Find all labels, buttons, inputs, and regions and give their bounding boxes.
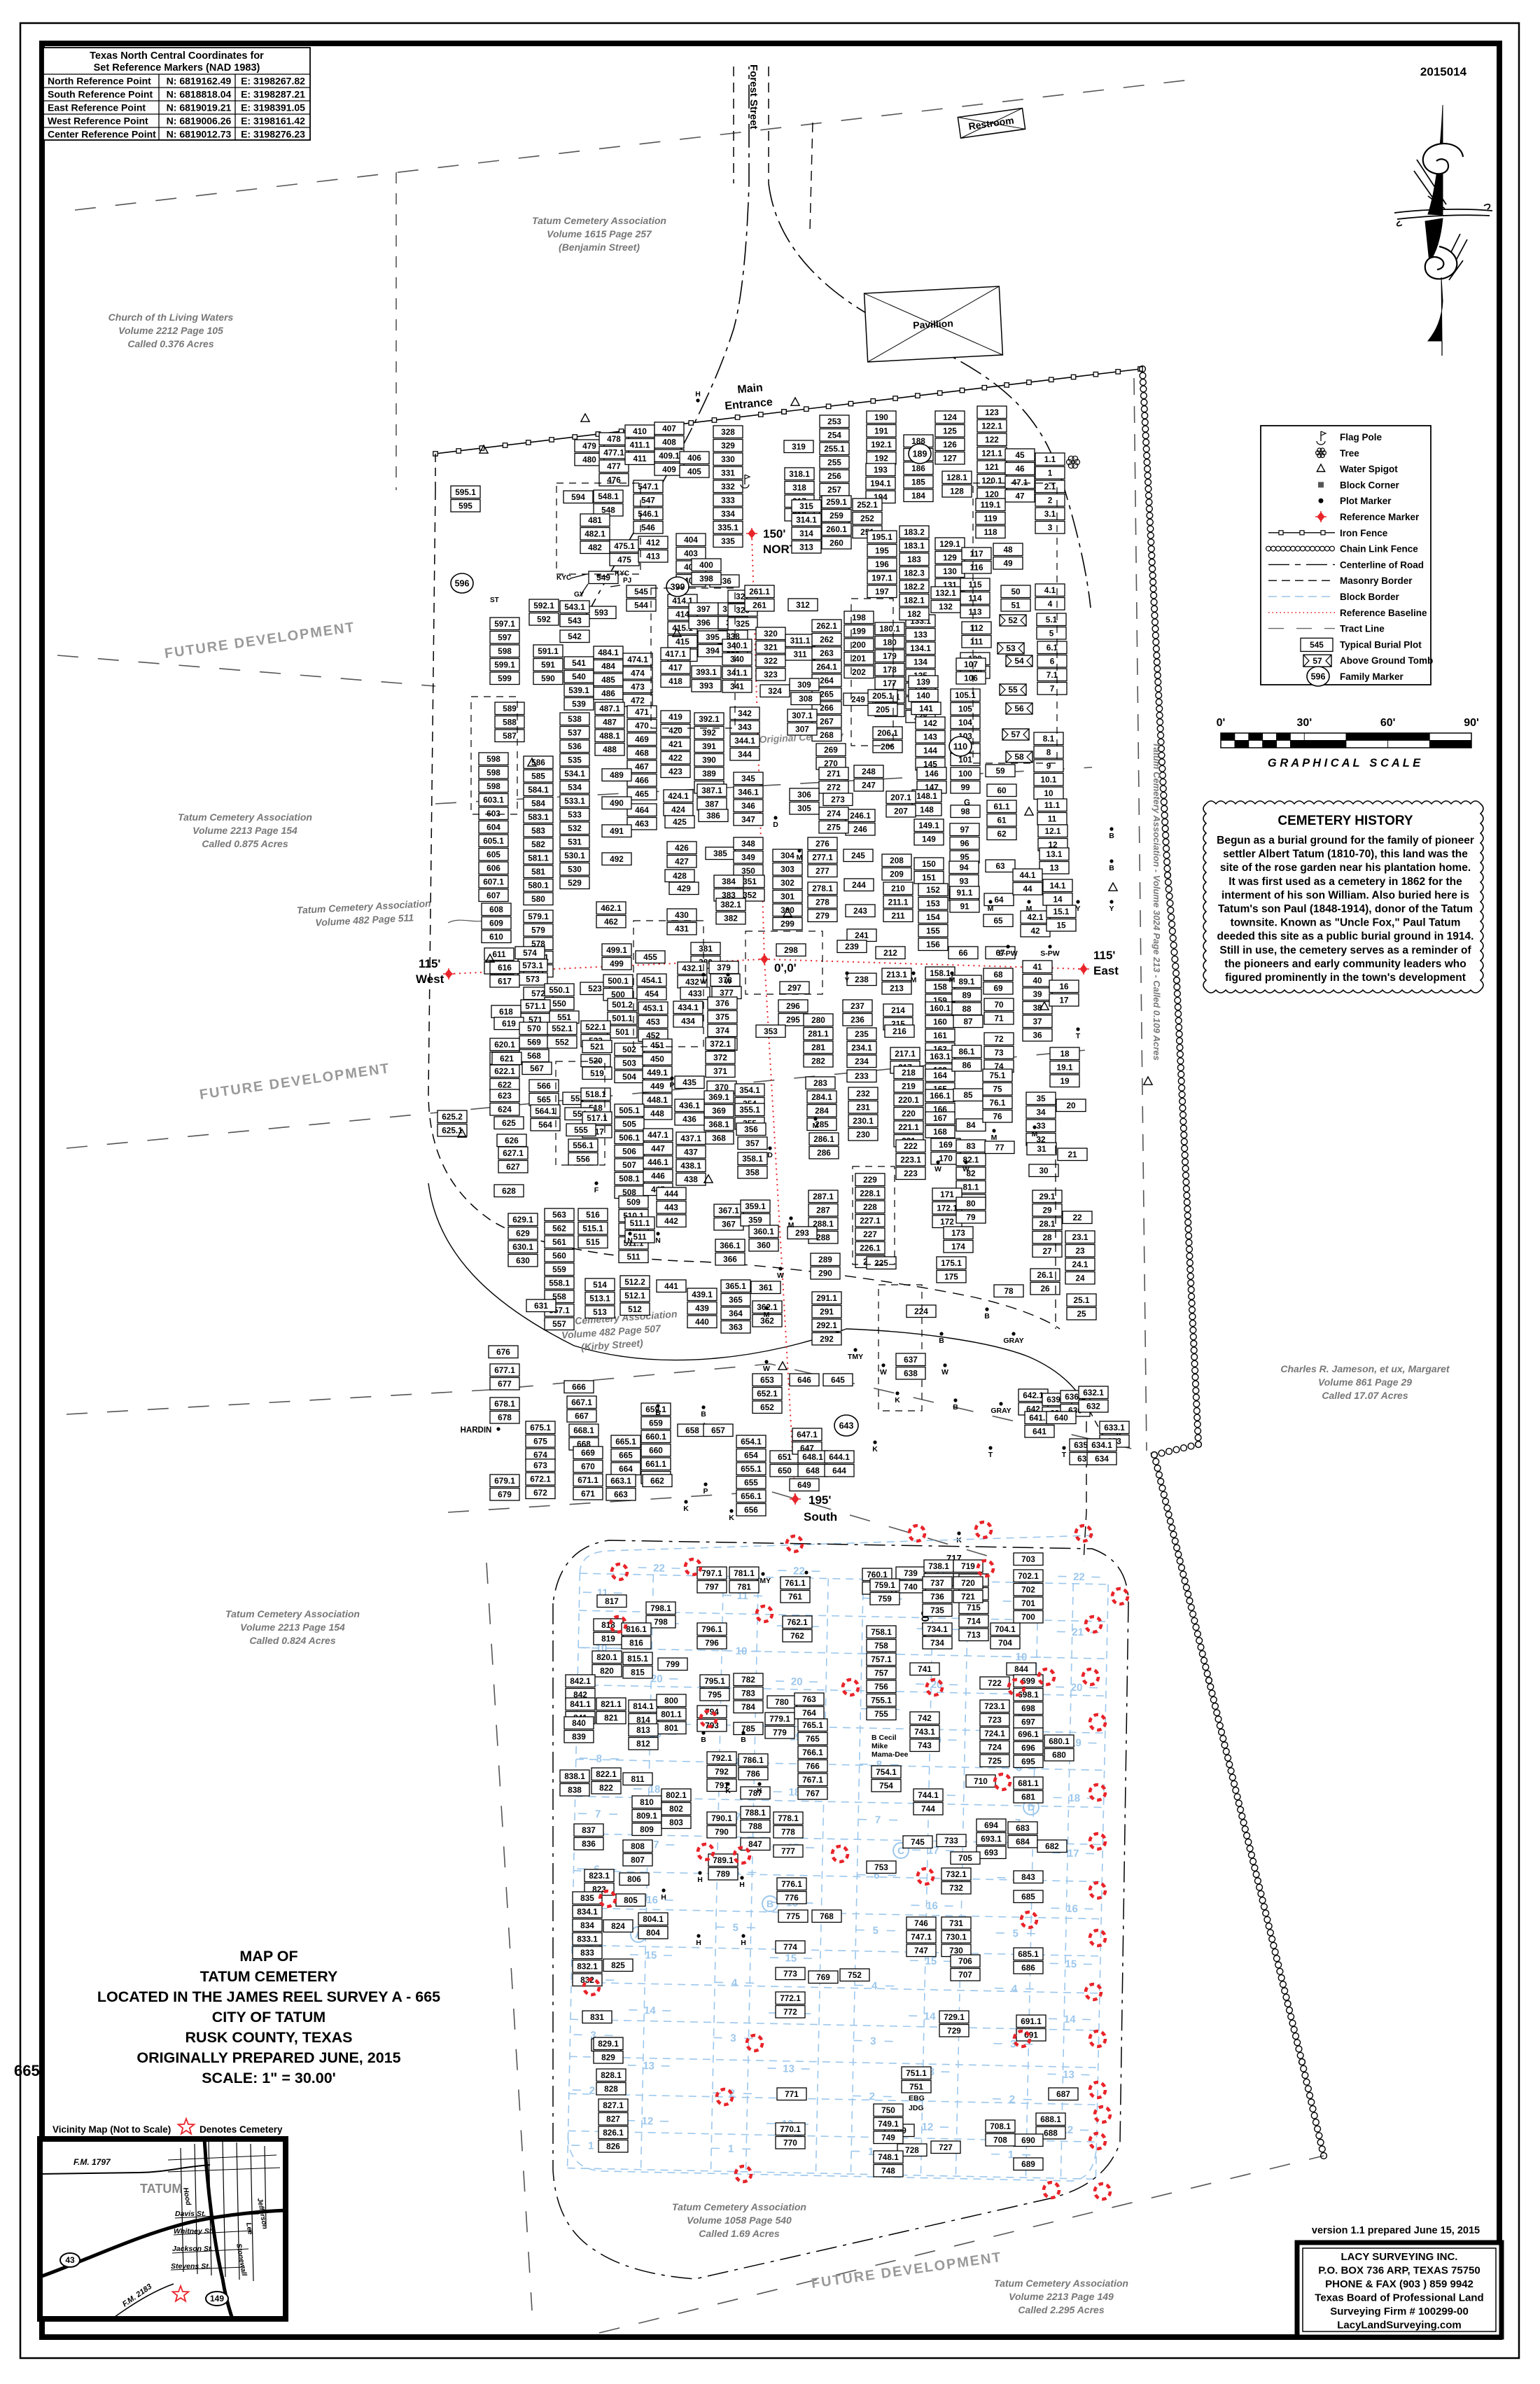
svg-text:665: 665 <box>14 2062 40 2079</box>
svg-text:842.1: 842.1 <box>570 1676 591 1686</box>
svg-text:678: 678 <box>498 1413 512 1423</box>
svg-text:192.1: 192.1 <box>871 440 892 449</box>
svg-text:227.1: 227.1 <box>860 1216 881 1226</box>
svg-text:782: 782 <box>741 1675 755 1685</box>
svg-text:840: 840 <box>572 1718 586 1728</box>
svg-text:608: 608 <box>489 905 503 914</box>
svg-text:765: 765 <box>806 1734 820 1744</box>
svg-text:91.1: 91.1 <box>957 888 973 898</box>
svg-text:687: 687 <box>1056 2089 1070 2099</box>
svg-text:148.1: 148.1 <box>916 791 937 801</box>
svg-text:15: 15 <box>925 1956 937 1967</box>
svg-text:734.1: 734.1 <box>927 1624 948 1634</box>
svg-text:759: 759 <box>878 1594 892 1604</box>
svg-text:805: 805 <box>624 1895 638 1905</box>
svg-text:235: 235 <box>855 1029 869 1039</box>
svg-text:104: 104 <box>958 718 972 727</box>
svg-text:283: 283 <box>813 1078 827 1088</box>
svg-text:189: 189 <box>913 449 927 459</box>
svg-text:832: 832 <box>580 1975 594 1985</box>
svg-text:741: 741 <box>918 1664 932 1674</box>
svg-text:588: 588 <box>503 718 517 727</box>
svg-text:13: 13 <box>783 2063 794 2075</box>
svg-text:57: 57 <box>1312 656 1322 666</box>
svg-text:473: 473 <box>631 682 645 692</box>
svg-text:603: 603 <box>486 809 500 818</box>
svg-text:727: 727 <box>939 2142 953 2152</box>
svg-text:311: 311 <box>793 650 806 660</box>
svg-text:210: 210 <box>891 884 905 893</box>
svg-text:207.1: 207.1 <box>890 793 911 802</box>
svg-text:630.1: 630.1 <box>512 1242 533 1252</box>
svg-text:K: K <box>725 1787 731 1795</box>
svg-text:ORIGINALLY PREPARED JUNE, 2015: ORIGINALLY PREPARED JUNE, 2015 <box>136 2049 400 2066</box>
svg-text:1: 1 <box>1008 2149 1014 2161</box>
svg-text:559: 559 <box>552 1264 566 1274</box>
svg-text:591.1: 591.1 <box>538 646 559 656</box>
svg-text:133: 133 <box>913 630 927 640</box>
svg-text:653: 653 <box>760 1375 774 1385</box>
svg-text:349: 349 <box>741 853 755 863</box>
svg-text:86: 86 <box>962 1061 972 1071</box>
svg-text:8.1: 8.1 <box>1043 734 1055 744</box>
svg-text:281.1: 281.1 <box>808 1029 829 1039</box>
svg-text:D: D <box>773 821 778 829</box>
svg-text:743.1: 743.1 <box>914 1727 935 1737</box>
svg-text:290: 290 <box>818 1269 832 1278</box>
svg-text:197: 197 <box>875 587 889 597</box>
svg-text:534.1: 534.1 <box>564 769 585 779</box>
svg-text:641: 641 <box>1032 1427 1046 1437</box>
svg-text:359: 359 <box>748 1215 762 1225</box>
svg-text:432.1: 432.1 <box>682 963 703 973</box>
svg-text:777: 777 <box>781 1846 795 1856</box>
svg-text:828: 828 <box>604 2084 618 2094</box>
svg-text:116: 116 <box>969 563 983 573</box>
svg-text:654.1: 654.1 <box>741 1437 762 1447</box>
svg-text:372.1: 372.1 <box>710 1039 731 1049</box>
svg-text:502: 502 <box>622 1045 636 1054</box>
svg-text:7: 7 <box>875 1814 881 1826</box>
svg-text:E: 3198391.05: E: 3198391.05 <box>241 102 305 113</box>
svg-text:15.1: 15.1 <box>1053 907 1070 916</box>
svg-text:Tatum Cemetery Association: Tatum Cemetery Association <box>225 1608 360 1619</box>
svg-text:748.1: 748.1 <box>878 2152 899 2162</box>
svg-text:382.1: 382.1 <box>720 900 741 909</box>
svg-text:841.1: 841.1 <box>570 1699 591 1709</box>
svg-text:117: 117 <box>969 549 983 559</box>
svg-text:396: 396 <box>696 618 710 628</box>
svg-text:672.1: 672.1 <box>530 1475 551 1484</box>
svg-text:736: 736 <box>930 1592 944 1602</box>
svg-text:820.1: 820.1 <box>596 1652 617 1662</box>
svg-text:318.1: 318.1 <box>789 469 810 479</box>
svg-text:479: 479 <box>582 441 596 451</box>
svg-text:80: 80 <box>966 1199 976 1208</box>
svg-text:East Reference Point: East Reference Point <box>48 102 146 113</box>
svg-text:758: 758 <box>874 1641 888 1651</box>
svg-text:195.1: 195.1 <box>871 532 892 542</box>
svg-text:24: 24 <box>1075 1274 1085 1283</box>
svg-text:341: 341 <box>730 682 744 692</box>
svg-text:723.1: 723.1 <box>984 1701 1005 1711</box>
svg-text:256: 256 <box>827 471 841 481</box>
svg-text:441: 441 <box>664 1281 678 1291</box>
svg-text:721: 721 <box>961 1592 975 1602</box>
svg-text:817: 817 <box>605 1596 619 1606</box>
svg-text:681: 681 <box>1021 1792 1035 1802</box>
svg-text:236: 236 <box>850 1015 864 1025</box>
svg-text:M: M <box>813 1122 819 1130</box>
svg-text:6.1: 6.1 <box>1046 643 1058 653</box>
svg-text:153: 153 <box>926 899 940 909</box>
svg-text:88: 88 <box>962 1004 972 1014</box>
svg-text:656.1: 656.1 <box>741 1491 762 1501</box>
svg-text:815.1: 815.1 <box>627 1654 648 1664</box>
svg-text:749: 749 <box>881 2133 895 2142</box>
svg-text:302: 302 <box>780 878 794 888</box>
svg-text:629.1: 629.1 <box>512 1215 533 1225</box>
svg-text:625.2: 625.2 <box>442 1112 463 1122</box>
svg-text:844: 844 <box>1014 1664 1028 1674</box>
svg-text:745: 745 <box>911 1837 925 1847</box>
svg-text:548.1: 548.1 <box>598 492 619 501</box>
svg-text:556.1: 556.1 <box>573 1141 594 1150</box>
svg-text:248: 248 <box>862 767 876 776</box>
svg-text:W: W <box>700 977 707 986</box>
svg-text:557: 557 <box>552 1319 566 1329</box>
svg-text:M: M <box>797 853 803 862</box>
svg-text:314: 314 <box>799 529 813 538</box>
svg-text:344: 344 <box>738 750 752 760</box>
svg-text:414: 414 <box>675 610 689 620</box>
svg-text:M: M <box>949 976 955 984</box>
svg-text:593: 593 <box>594 608 608 618</box>
svg-text:648: 648 <box>806 1466 820 1476</box>
svg-text:LOCATED IN THE JAMES REEL SURV: LOCATED IN THE JAMES REEL SURVEY A - 665 <box>97 1988 440 2005</box>
svg-text:G: G <box>964 799 970 807</box>
svg-text:781: 781 <box>737 1582 751 1592</box>
svg-text:505: 505 <box>622 1120 636 1129</box>
svg-text:155: 155 <box>926 926 940 936</box>
svg-text:B: B <box>655 1409 661 1417</box>
svg-text:18: 18 <box>1068 1792 1080 1804</box>
svg-text:Volume 2212 Page 105: Volume 2212 Page 105 <box>118 325 223 336</box>
svg-text:617: 617 <box>498 977 512 987</box>
svg-text:148: 148 <box>920 805 934 815</box>
svg-text:395: 395 <box>706 632 720 642</box>
svg-text:340: 340 <box>730 655 744 664</box>
svg-text:99: 99 <box>960 783 970 793</box>
svg-text:774: 774 <box>783 1942 797 1952</box>
svg-text:293: 293 <box>795 1228 809 1238</box>
svg-text:23.1: 23.1 <box>1072 1232 1088 1242</box>
svg-text:562: 562 <box>552 1224 566 1234</box>
svg-text:261: 261 <box>752 601 766 611</box>
svg-text:482: 482 <box>588 543 602 552</box>
svg-text:24.1: 24.1 <box>1072 1260 1088 1269</box>
svg-text:412: 412 <box>646 538 660 548</box>
svg-text:89: 89 <box>962 991 972 1001</box>
svg-text:284.1: 284.1 <box>811 1092 832 1102</box>
svg-text:573.1: 573.1 <box>522 961 543 970</box>
svg-text:713: 713 <box>967 1630 981 1640</box>
svg-text:Above Ground Tomb: Above Ground Tomb <box>1340 655 1433 666</box>
svg-text:769: 769 <box>816 1972 830 1982</box>
svg-text:112: 112 <box>969 623 983 633</box>
svg-text:734: 734 <box>930 1638 944 1648</box>
svg-text:427: 427 <box>675 857 689 867</box>
svg-text:6: 6 <box>1050 657 1055 667</box>
svg-text:4: 4 <box>1011 1983 1018 1995</box>
svg-text:533: 533 <box>568 810 582 820</box>
svg-text:827: 827 <box>606 2114 620 2124</box>
svg-text:650: 650 <box>778 1466 792 1476</box>
svg-text:453.1: 453.1 <box>643 1003 664 1013</box>
svg-text:120.1: 120.1 <box>981 476 1002 486</box>
svg-text:802.1: 802.1 <box>666 1790 687 1800</box>
svg-text:Set Reference Markers (NAD 198: Set Reference Markers (NAD 1983) <box>94 62 260 74</box>
svg-text:702: 702 <box>1021 1585 1035 1595</box>
svg-text:114: 114 <box>968 594 981 604</box>
svg-text:365: 365 <box>729 1295 743 1305</box>
svg-text:677: 677 <box>498 1379 512 1389</box>
svg-text:0': 0' <box>1217 717 1226 729</box>
svg-text:520: 520 <box>589 1056 603 1066</box>
svg-text:501.1: 501.1 <box>612 1014 633 1024</box>
svg-text:806: 806 <box>627 1874 641 1884</box>
svg-text:467: 467 <box>635 762 649 772</box>
svg-text:605: 605 <box>486 850 500 860</box>
svg-text:110: 110 <box>953 741 967 751</box>
svg-text:28: 28 <box>1042 1233 1052 1243</box>
svg-text:149: 149 <box>210 2294 224 2303</box>
svg-text:Main: Main <box>737 382 764 396</box>
svg-text:164: 164 <box>933 1071 947 1080</box>
svg-text:282: 282 <box>811 1057 825 1066</box>
svg-text:752: 752 <box>848 1970 862 1980</box>
svg-text:802: 802 <box>669 1804 683 1814</box>
svg-text:680: 680 <box>1052 1750 1066 1760</box>
svg-text:455: 455 <box>643 952 657 962</box>
svg-text:733: 733 <box>944 1836 958 1846</box>
svg-text:220: 220 <box>902 1109 916 1119</box>
svg-text:202: 202 <box>852 667 866 677</box>
svg-text:89.1: 89.1 <box>959 977 975 987</box>
svg-text:5: 5 <box>1049 629 1054 639</box>
svg-text:448: 448 <box>650 1109 664 1119</box>
svg-text:346.1: 346.1 <box>738 788 759 797</box>
svg-text:431: 431 <box>675 924 689 934</box>
svg-text:434.1: 434.1 <box>678 1003 699 1012</box>
svg-text:748: 748 <box>881 2166 895 2176</box>
svg-text:S-PW: S-PW <box>998 949 1018 958</box>
svg-text:657: 657 <box>711 1425 725 1435</box>
svg-text:18: 18 <box>1060 1049 1070 1059</box>
svg-text:settler Albert Tatum (1810-70): settler Albert Tatum (1810-70), this lan… <box>1223 849 1468 860</box>
svg-text:516: 516 <box>586 1210 600 1220</box>
svg-text:52: 52 <box>1008 615 1018 625</box>
svg-text:272: 272 <box>827 783 841 793</box>
svg-text:223: 223 <box>904 1169 918 1178</box>
svg-text:13: 13 <box>1049 863 1059 873</box>
svg-text:387: 387 <box>705 800 719 809</box>
svg-text:195: 195 <box>875 546 889 556</box>
svg-text:W: W <box>724 977 731 986</box>
svg-text:667: 667 <box>575 1411 589 1421</box>
svg-text:274: 274 <box>827 809 841 818</box>
svg-text:625: 625 <box>502 1118 516 1128</box>
svg-text:286: 286 <box>817 1148 831 1158</box>
svg-text:407: 407 <box>662 424 676 433</box>
svg-text:3.1: 3.1 <box>1044 509 1056 519</box>
svg-text:35: 35 <box>1036 1094 1046 1103</box>
svg-text:South Reference Point: South Reference Point <box>48 89 153 100</box>
svg-text:263: 263 <box>820 648 834 658</box>
svg-text:786: 786 <box>746 1769 760 1779</box>
svg-text:22: 22 <box>1072 1213 1082 1222</box>
svg-text:10.1: 10.1 <box>1041 775 1057 785</box>
svg-text:568: 568 <box>527 1051 541 1061</box>
svg-text:358: 358 <box>745 1168 759 1178</box>
svg-text:139: 139 <box>916 677 930 687</box>
svg-text:Y: Y <box>844 976 849 984</box>
svg-text:666: 666 <box>572 1382 586 1392</box>
svg-text:118: 118 <box>983 527 997 537</box>
svg-text:778: 778 <box>781 1827 795 1837</box>
svg-text:500.1: 500.1 <box>608 976 629 986</box>
svg-text:figured prominently in the tow: figured prominently in the town's develo… <box>1225 972 1466 984</box>
svg-text:786.1: 786.1 <box>743 1755 764 1765</box>
svg-text:603.1: 603.1 <box>483 795 504 805</box>
svg-text:644.1: 644.1 <box>829 1452 850 1462</box>
svg-text:Tatum Cemetery Association: Tatum Cemetery Association <box>178 811 312 823</box>
svg-text:TMY: TMY <box>848 1353 863 1361</box>
svg-text:643: 643 <box>839 1421 854 1430</box>
svg-text:386: 386 <box>706 811 720 821</box>
svg-text:158.1: 158.1 <box>930 968 951 978</box>
svg-text:798: 798 <box>654 1617 668 1627</box>
svg-text:360.1: 360.1 <box>753 1227 774 1236</box>
svg-text:660: 660 <box>649 1446 663 1456</box>
svg-text:version 1.1 prepared June 15,: version 1.1 prepared June 15, 2015 <box>1312 2225 1480 2236</box>
svg-text:Tatum's son Paul (1848-1914),: Tatum's son Paul (1848-1914), donor of t… <box>1218 903 1473 915</box>
svg-text:46: 46 <box>1015 464 1025 474</box>
svg-text:631: 631 <box>534 1301 548 1311</box>
svg-text:163.1: 163.1 <box>930 1052 951 1061</box>
svg-text:607.1: 607.1 <box>483 877 504 887</box>
svg-text:742: 742 <box>918 1713 932 1723</box>
svg-text:TATUM: TATUM <box>140 2182 182 2196</box>
svg-text:761: 761 <box>788 1592 802 1602</box>
svg-text:F.M. 1797: F.M. 1797 <box>73 2157 111 2167</box>
svg-text:462.1: 462.1 <box>601 903 622 913</box>
svg-text:W: W <box>763 1365 770 1373</box>
svg-text:182.3: 182.3 <box>904 569 925 578</box>
svg-text:790: 790 <box>715 1827 729 1837</box>
svg-text:301: 301 <box>780 892 794 902</box>
svg-text:358.1: 358.1 <box>742 1154 763 1164</box>
svg-text:58: 58 <box>1014 752 1024 762</box>
svg-text:75: 75 <box>993 1085 1002 1094</box>
svg-text:E: 3198276.23: E: 3198276.23 <box>241 129 305 140</box>
svg-text:73: 73 <box>994 1048 1004 1058</box>
svg-text:Masonry Border: Masonry Border <box>1340 576 1413 586</box>
svg-text:470: 470 <box>635 721 649 731</box>
svg-text:514: 514 <box>593 1280 607 1290</box>
svg-text:547.1: 547.1 <box>638 482 659 492</box>
svg-text:19: 19 <box>1060 1076 1070 1086</box>
svg-text:96: 96 <box>960 839 969 849</box>
svg-text:454: 454 <box>645 989 659 999</box>
svg-text:254: 254 <box>827 431 841 440</box>
svg-text:230: 230 <box>856 1130 870 1140</box>
svg-text:426: 426 <box>675 843 689 853</box>
svg-text:MAP OF: MAP OF <box>239 1948 297 1965</box>
svg-text:506: 506 <box>622 1147 636 1157</box>
svg-text:796: 796 <box>705 1638 719 1648</box>
svg-text:792.1: 792.1 <box>711 1753 732 1763</box>
svg-text:127: 127 <box>943 454 957 463</box>
svg-text:534: 534 <box>568 783 582 793</box>
svg-text:829: 829 <box>601 2053 615 2063</box>
svg-text:281: 281 <box>811 1043 825 1052</box>
svg-text:472: 472 <box>631 696 645 706</box>
svg-text:120: 120 <box>985 489 999 499</box>
svg-text:509: 509 <box>626 1197 640 1207</box>
svg-text:345: 345 <box>741 774 755 783</box>
svg-text:511.1: 511.1 <box>630 1218 650 1228</box>
svg-text:784: 784 <box>741 1702 755 1712</box>
svg-text:675: 675 <box>533 1437 547 1447</box>
svg-text:55: 55 <box>1008 685 1018 695</box>
svg-text:550.1: 550.1 <box>549 985 570 995</box>
svg-text:149: 149 <box>922 835 936 844</box>
svg-text:634: 634 <box>1095 1454 1109 1464</box>
svg-text:449.1: 449.1 <box>647 1068 668 1078</box>
svg-text:300: 300 <box>780 905 794 915</box>
svg-text:Surveying Firm # 100299-00: Surveying Firm # 100299-00 <box>1330 2306 1469 2317</box>
svg-text:747.1: 747.1 <box>911 1932 932 1942</box>
svg-text:10: 10 <box>1044 788 1053 798</box>
svg-text:453: 453 <box>646 1017 660 1027</box>
svg-text:M: M <box>764 1311 770 1319</box>
svg-text:191: 191 <box>874 426 888 436</box>
svg-text:690: 690 <box>1021 2135 1035 2145</box>
svg-text:63: 63 <box>995 861 1005 871</box>
svg-text:515: 515 <box>586 1237 600 1247</box>
svg-text:60': 60' <box>1380 717 1396 729</box>
svg-text:390: 390 <box>702 755 716 765</box>
svg-text:21: 21 <box>1067 1150 1077 1159</box>
svg-text:732: 732 <box>949 1883 963 1893</box>
svg-text:348: 348 <box>741 839 755 849</box>
svg-text:411.1: 411.1 <box>630 440 650 450</box>
svg-text:N: N <box>627 1236 633 1245</box>
svg-text:62: 62 <box>997 829 1007 839</box>
svg-text:152: 152 <box>926 885 940 895</box>
svg-text:16: 16 <box>1059 982 1069 991</box>
svg-text:689: 689 <box>1021 2159 1035 2169</box>
svg-text:737: 737 <box>930 1578 944 1588</box>
svg-text:387.1: 387.1 <box>701 786 722 795</box>
svg-text:432: 432 <box>685 977 699 987</box>
svg-text:298: 298 <box>784 945 798 955</box>
svg-text:560: 560 <box>552 1251 566 1261</box>
svg-text:442: 442 <box>664 1216 678 1226</box>
svg-text:835: 835 <box>580 1893 594 1903</box>
svg-text:486: 486 <box>601 689 615 699</box>
